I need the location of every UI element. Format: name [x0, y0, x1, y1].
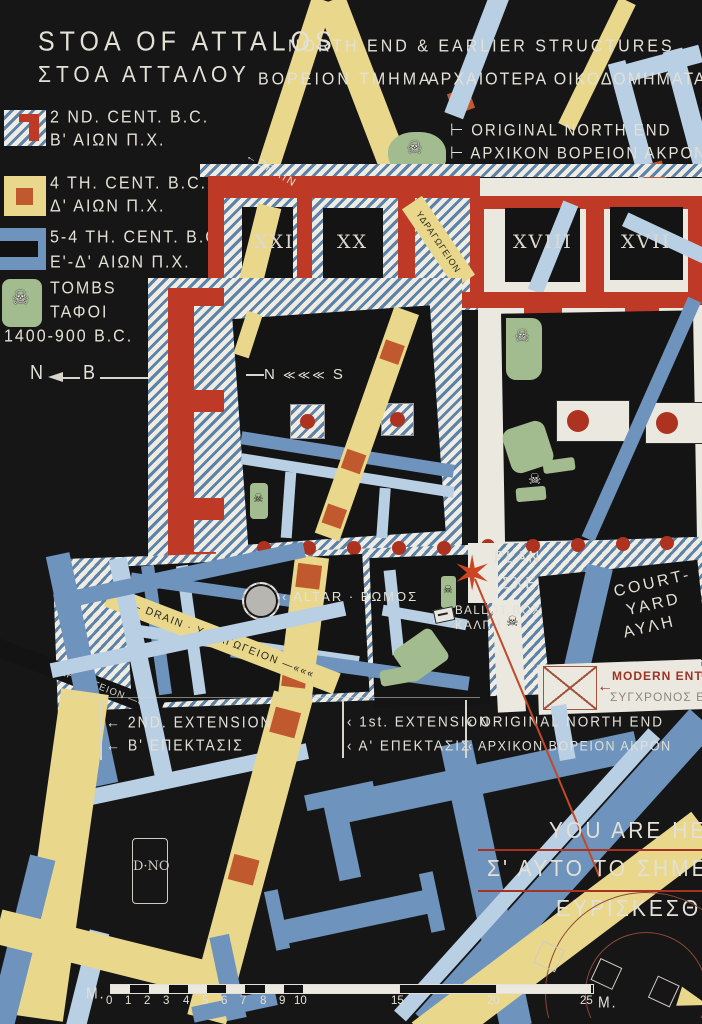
scale-prefix: M. — [86, 984, 106, 1002]
legend-swatch-red-wall2 — [19, 114, 39, 122]
arrow-small-icon: ‹ — [468, 738, 474, 754]
skull-icon: ☠ — [407, 138, 422, 158]
original-north-end-bottom-en: ‹ ORIGINAL NORTH END — [468, 713, 664, 730]
legend-tombs-dates: 1400-900 B.C. — [4, 327, 133, 347]
you-are-here-en: YOU ARE HERE — [549, 818, 702, 845]
scale-seg — [130, 985, 149, 993]
scale-bar-track — [110, 984, 594, 994]
column-dot — [656, 412, 678, 434]
dimension-line-ext1 — [342, 700, 344, 758]
drain-orange-7 — [228, 854, 260, 886]
legend-tombs-gr: ΤΑΦΟΙ — [50, 303, 108, 323]
modern-entrance-gr: ΣΥΓΧΡΟΝΟΣ ΕΙΣΟΔΟΣ — [610, 690, 702, 704]
scale-tick-2: 2 — [144, 995, 150, 1007]
column-base-court-1 — [556, 400, 630, 442]
dimension-line-ext2 — [100, 698, 102, 760]
tomb-blob-courtyard-1: ☠ — [506, 318, 542, 380]
tick-icon: ⊢ — [450, 121, 465, 140]
legend-5-4th-cent-gr: Ε'-Δ' ΑΙΩΝ Π.Χ. — [50, 253, 191, 273]
compass-west-b: B — [80, 361, 100, 385]
arrow-left-icon: ← — [106, 736, 122, 754]
tomb-bar-2 — [515, 486, 546, 503]
page-title-gr: ΣΤΟΑ ΑΤΤΑΛΟΥ — [38, 62, 251, 89]
compass-west-line — [56, 377, 152, 379]
extension-2nd-gr: ← Β' ΕΠΕΚΤΑΣΙΣ — [106, 736, 244, 754]
room-label-xxi: XXI — [254, 231, 295, 253]
scale-tick-7: 7 — [240, 995, 246, 1007]
legend-swatch-2nd-cent — [4, 110, 46, 146]
room-label-xvii: XVII — [621, 231, 671, 253]
drain-orange-3 — [379, 339, 405, 365]
column-dot-row — [392, 541, 406, 555]
scale-seg — [245, 985, 264, 993]
column-dot-row — [347, 541, 361, 555]
scale-tick-3: 3 — [163, 995, 169, 1007]
band-arrow-tip — [676, 987, 702, 1015]
skull-icon: ☠ — [528, 470, 541, 488]
scale-seg — [399, 985, 497, 993]
compass-line — [246, 374, 264, 376]
scale-tick-25: 25 — [580, 995, 593, 1007]
arrow-small-icon: ‹ — [347, 737, 354, 754]
legend-tombs-en: TOMBS — [50, 279, 117, 299]
skull-icon: ☠ — [515, 326, 529, 345]
scale-seg — [284, 985, 303, 993]
original-north-end-top-en: ⊢ ORIGINAL NORTH END — [450, 120, 671, 140]
column-dot-row — [571, 538, 585, 552]
scale-seg — [169, 985, 188, 993]
room-label-xviii: XVIII — [513, 231, 573, 253]
legend-5-4th-cent-en: 5-4 TH. CENT. B.C. — [50, 228, 225, 248]
arrow-small-icon: ‹ — [347, 713, 354, 730]
column-base-1 — [290, 404, 325, 439]
scale-tick-5: 5 — [202, 995, 208, 1007]
page-subtitle-gr2: ΑΡΧΑΙΟΤΕΡΑ ΟΙΚΟΔΟΜΗΜΑΤΑ — [428, 70, 702, 90]
altar-label: ‹ ALTAR · ΒΩΜΟΣ — [282, 589, 418, 604]
page-subtitle-en: NORTH END & EARLIER STRUCTURES — [288, 37, 675, 57]
legend-swatch-orange-block — [16, 188, 33, 205]
compass-west-arrowhead-icon — [48, 372, 63, 382]
scale-seg — [207, 985, 226, 993]
scale-seg — [149, 985, 168, 993]
extension-2nd-en: ← 2ND. EXTENSION — [106, 713, 273, 731]
scale-tick-9: 9 — [279, 995, 285, 1007]
column-dot-row — [660, 536, 674, 550]
scale-tick-20: 20 — [487, 995, 500, 1007]
chevrons-icon: ≪≪≪ — [283, 368, 327, 382]
skull-icon: ☠ — [12, 287, 29, 309]
drain-orange-1 — [322, 503, 348, 529]
legend-swatch-black-wall — [0, 241, 38, 257]
column-dot-row — [437, 541, 451, 555]
scale-seg — [111, 985, 130, 993]
water-channel-top-center — [444, 0, 509, 119]
ballot-box-label-en: BALLOT BOX · — [455, 605, 551, 617]
original-north-end-bottom-gr: ‹ ΑΡΧΙΚΟΝ ΒΟΡΕΙΟΝ ΑΚΡΟΝ — [468, 738, 672, 754]
page-subtitle-gr1: ΒΟΡΕΙΟΝ ΤΜΗΜΑ — [258, 70, 433, 90]
altar-circle — [242, 582, 280, 620]
drain-orange-6 — [269, 707, 301, 739]
legend-4th-cent-gr: Δ' ΑΙΩΝ Π.Χ. — [50, 197, 166, 217]
tick-icon: ⊢ — [450, 144, 465, 163]
arrow-small-icon: ‹ — [282, 589, 288, 604]
compass-plan: N ≪≪≪ S — [246, 366, 345, 383]
terrace-edge-line — [60, 697, 480, 698]
legend-4th-cent-en: 4 TH. CENT. B.C. — [50, 174, 207, 194]
entrance-stairs-icon — [543, 666, 597, 710]
ballot-box-slit — [438, 612, 448, 616]
scale-tick-6: 6 — [221, 995, 227, 1007]
scale-tick-10: 10 — [294, 995, 307, 1007]
compass-west-n: N — [30, 361, 45, 385]
west-wall-pier-1 — [194, 288, 224, 306]
skull-icon: ☠ — [253, 491, 264, 505]
plan-label-en: PLAN — [494, 548, 541, 567]
scale-seg — [303, 985, 399, 993]
scale-suffix: M. — [598, 993, 618, 1011]
scale-seg — [265, 985, 284, 993]
scale-bar: M. 0 1 2 3 4 5 6 7 8 9 10 15 20 25 M. — [80, 980, 640, 1010]
stoa-map: STOA OF ATTALOS NORTH END & EARLIER STRU… — [0, 0, 702, 1024]
modern-entrance-en: MODERN ENTRANCE — [612, 669, 702, 683]
room-label-xx: XX — [337, 231, 368, 253]
drain-orange-4 — [295, 563, 322, 590]
you-are-here-rule-1 — [478, 849, 702, 851]
room-wall-v5 — [586, 205, 604, 305]
scale-tick-8: 8 — [260, 995, 266, 1007]
tomb-slab-central: ☠ — [250, 483, 268, 519]
arrow-small-icon: ‹ — [468, 713, 475, 730]
legend-swatch-tombs: ☠ — [2, 279, 42, 327]
cartographer-monogram: D·NO — [132, 838, 168, 904]
scale-tick-15: 15 — [391, 995, 404, 1007]
wall-ibeam-h — [279, 890, 431, 945]
scale-seg — [226, 985, 245, 993]
column-dot — [300, 414, 315, 429]
scale-seg — [497, 985, 591, 993]
column-dot — [567, 410, 589, 432]
band-square-1 — [533, 940, 565, 972]
legend-swatch-4th-cent — [4, 176, 46, 216]
you-are-here-star-icon: ✶ — [452, 550, 492, 598]
scale-tick-0: 0 — [106, 995, 112, 1007]
original-north-end-top-gr: ⊢ ΑΡΧΙΚΟΝ ΒΟΡΕΙΟΝ ΑΚΡΟΝ — [450, 143, 702, 163]
west-wall-pier-2 — [194, 390, 224, 412]
extension-1st-gr: ‹ Α' ΕΠΕΚΤΑΣΙΣ — [347, 737, 471, 754]
scale-seg — [188, 985, 207, 993]
skull-icon: ☠ — [506, 614, 519, 630]
arrow-left-icon: ← — [106, 713, 122, 731]
scale-tick-4: 4 — [183, 995, 189, 1007]
stoa-north-wall — [208, 176, 480, 198]
band-square-3 — [648, 976, 680, 1008]
column-dot — [390, 412, 405, 427]
legend-2nd-cent-en: 2 ND. CENT. B.C. — [50, 108, 209, 128]
scale-tick-1: 1 — [125, 995, 131, 1007]
legend-swatch-5-4th-cent — [0, 228, 46, 270]
monogram-letters: D·NO — [133, 859, 167, 874]
drain-orange-2 — [341, 449, 367, 475]
legend-2nd-cent-gr: Β' ΑΙΩΝ Π.Χ. — [50, 131, 165, 151]
west-wall-pier-3 — [194, 498, 224, 520]
column-dot-row — [616, 537, 630, 551]
west-wall — [168, 288, 194, 566]
